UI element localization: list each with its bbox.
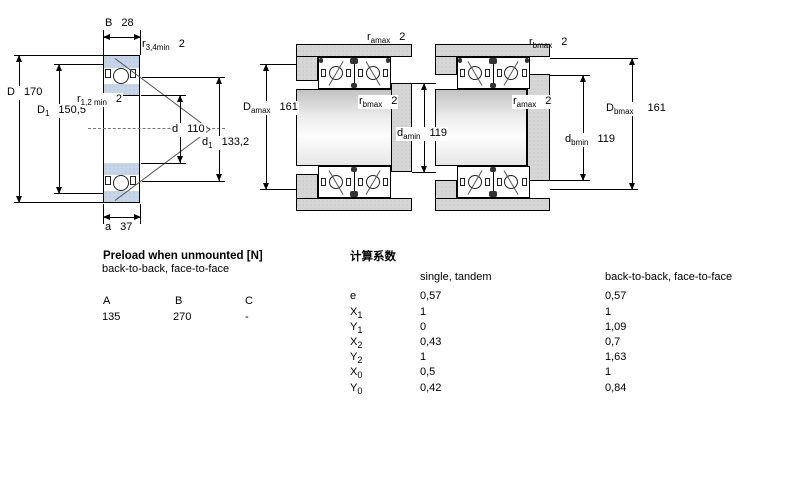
- bearing-cage: [485, 69, 490, 77]
- bearing-cage: [497, 69, 502, 77]
- outer-ring-section: [104, 191, 139, 202]
- factor-symbol: Y0: [350, 382, 362, 398]
- preload-title: Preload when unmounted [N]: [103, 250, 263, 263]
- factor-symbol: Y2: [350, 351, 362, 367]
- arrowhead: [16, 55, 22, 62]
- seal-detail: [350, 58, 358, 64]
- arrowhead: [177, 156, 183, 163]
- dim-label-Damax: Damax161: [242, 101, 299, 115]
- extension-line: [141, 163, 186, 164]
- preload-col-B: B: [175, 295, 182, 308]
- dimension-line-Dbmax: [632, 58, 633, 190]
- factor-paired-value: 0,57: [605, 290, 626, 303]
- factors-header-paired: back-to-back, face-to-face: [605, 271, 732, 284]
- arrowhead: [580, 75, 586, 82]
- factor-single-value: 1: [420, 306, 426, 319]
- dim-label-r12: r1,2 min2: [76, 93, 123, 107]
- arrowhead: [421, 166, 427, 173]
- bearing-cage: [358, 178, 363, 186]
- seal-detail: [319, 58, 323, 63]
- dim-label-rbmax: rbmax2: [528, 36, 568, 50]
- factor-single-value: 0,42: [420, 382, 441, 395]
- housing-section: [435, 198, 550, 211]
- arrowhead: [134, 214, 141, 220]
- arrowhead: [580, 174, 586, 181]
- seal-detail: [490, 167, 496, 172]
- preload-val-B: 270: [173, 311, 191, 324]
- factor-paired-value: 1,63: [605, 351, 626, 364]
- dim-label-damin: damin119: [396, 127, 448, 141]
- factor-single-value: 0,43: [420, 336, 441, 349]
- dimension-line-D1: [59, 64, 60, 194]
- extension-line: [550, 189, 638, 190]
- extension-line: [14, 202, 103, 203]
- factor-paired-value: 1,09: [605, 321, 626, 334]
- arrowhead: [421, 83, 427, 90]
- bearing-cage: [522, 178, 527, 186]
- dim-label-d1: d1133,2: [201, 136, 250, 150]
- factors-title: 计算系数: [350, 251, 396, 264]
- bearing-cage: [460, 178, 465, 186]
- seal-detail: [351, 83, 357, 88]
- arrowhead: [56, 187, 62, 194]
- dim-label-r34: r3,4min2: [141, 38, 186, 52]
- seal-detail: [350, 191, 358, 197]
- seal-detail: [489, 191, 497, 197]
- arrowhead: [103, 34, 110, 40]
- factor-paired-value: 1: [605, 306, 611, 319]
- arrowhead: [16, 196, 22, 203]
- factor-single-value: 0,5: [420, 366, 435, 379]
- dim-label-ramax: ramax2: [512, 95, 552, 109]
- extension-line: [142, 181, 225, 182]
- arrowhead: [263, 183, 269, 190]
- extension-line: [14, 55, 103, 56]
- preload-val-C: -: [245, 311, 249, 324]
- bearing-cage: [321, 69, 326, 77]
- bearing-ball: [113, 175, 129, 191]
- arrowhead: [629, 58, 635, 65]
- bearing-cage: [485, 178, 490, 186]
- bearing-cage: [460, 69, 465, 77]
- extension-line: [550, 58, 638, 59]
- factor-single-value: 0,57: [420, 290, 441, 303]
- bearing-ball: [113, 68, 129, 84]
- housing-shoulder: [435, 56, 457, 75]
- seal-detail: [458, 58, 462, 63]
- housing-shoulder: [296, 174, 318, 199]
- bearing-cage: [321, 178, 326, 186]
- bearing-cage: [383, 69, 388, 77]
- seal-detail: [351, 167, 357, 172]
- dimension-line-D: [19, 55, 20, 203]
- dim-label-B: B28: [104, 17, 135, 31]
- housing-shoulder: [296, 56, 318, 81]
- bearing-cage: [358, 69, 363, 77]
- preload-subtitle: back-to-back, face-to-face: [102, 263, 229, 276]
- factor-paired-value: 1: [605, 366, 611, 379]
- dimension-line-dbmin: [583, 75, 584, 181]
- extension-line: [142, 77, 225, 78]
- arrowhead: [56, 64, 62, 71]
- arrowhead: [263, 64, 269, 71]
- bearing-cage: [105, 176, 111, 185]
- bearing-cage: [522, 69, 527, 77]
- dimension-line-Damax: [266, 64, 267, 190]
- factor-symbol: X0: [350, 366, 362, 382]
- bearing-cage: [497, 178, 502, 186]
- arrowhead: [103, 214, 110, 220]
- arrowhead: [629, 183, 635, 190]
- seal-detail: [490, 83, 496, 88]
- factor-paired-value: 0,84: [605, 382, 626, 395]
- dim-label-D: D170: [6, 86, 43, 100]
- factors-header-single: single, tandem: [420, 271, 492, 284]
- seal-detail: [525, 58, 529, 63]
- bearing-specification-page: B28 r3,4min2 D170 D1150,5 r1,2 min2: [0, 0, 800, 500]
- dimension-line-d1: [219, 77, 220, 181]
- seal-detail: [386, 58, 390, 63]
- dim-label-Dbmax: Dbmax161: [605, 102, 667, 116]
- bearing-cage: [346, 178, 351, 186]
- preload-col-C: C: [245, 295, 253, 308]
- bearing-cage: [346, 69, 351, 77]
- dim-label-a: a37: [104, 221, 133, 235]
- factor-symbol: e: [350, 290, 356, 306]
- housing-shoulder: [435, 180, 457, 199]
- housing-section: [296, 198, 412, 211]
- bearing-cage: [383, 178, 388, 186]
- bearing-cage: [105, 69, 111, 78]
- factor-single-value: 0: [420, 321, 426, 334]
- arrowhead: [134, 34, 141, 40]
- shaft-shoulder: [527, 74, 550, 181]
- factor-symbol: Y1: [350, 321, 362, 337]
- dim-label-dbmin: dbmin119: [564, 133, 616, 147]
- inner-ring-section: [104, 163, 139, 175]
- arrowhead: [216, 77, 222, 84]
- arrowhead: [177, 95, 183, 102]
- preload-val-A: 135: [102, 311, 120, 324]
- factor-single-value: 1: [420, 351, 426, 364]
- seal-detail: [489, 58, 497, 64]
- factor-symbol: X1: [350, 306, 362, 322]
- factor-paired-value: 0,7: [605, 336, 620, 349]
- dim-label-rbmax: rbmax2: [358, 95, 398, 109]
- factor-symbol: X2: [350, 336, 362, 352]
- preload-col-A: A: [103, 295, 110, 308]
- dim-label-ramax: ramax2: [366, 31, 406, 45]
- arrowhead: [216, 174, 222, 181]
